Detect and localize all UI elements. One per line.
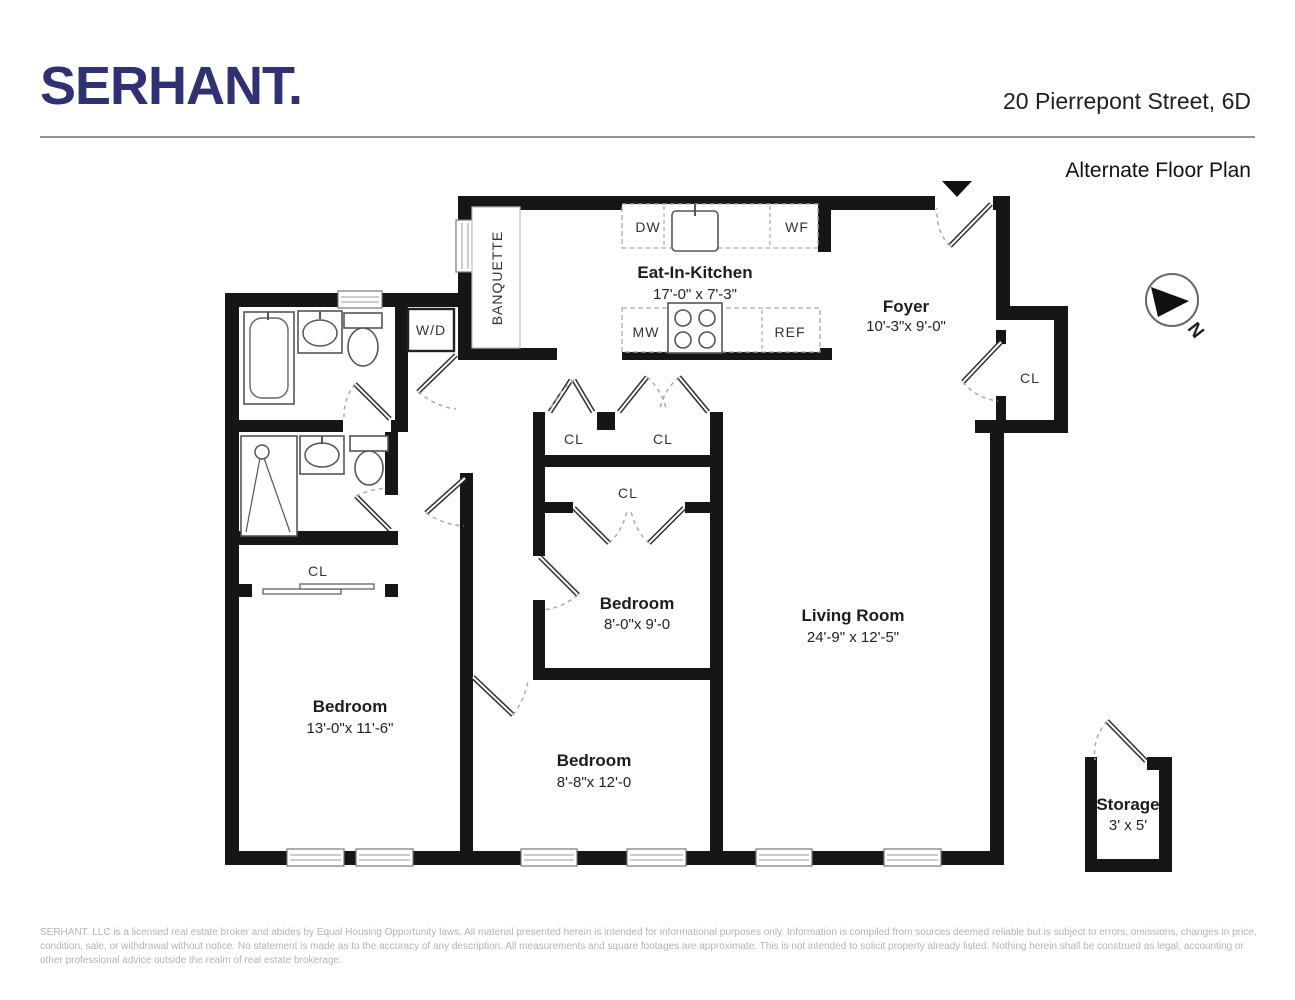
window	[287, 849, 344, 866]
left-bedroom-label: Bedroom	[313, 697, 388, 716]
window	[338, 291, 382, 308]
legal-disclaimer: SERHANT. LLC is a licensed real estate b…	[40, 926, 1258, 968]
entry-marker-icon	[942, 181, 972, 197]
bathroom-door	[356, 488, 390, 530]
kitchen-sink-icon	[672, 204, 718, 251]
sliding-closet-doors	[263, 584, 374, 594]
middle-bedroom-dims: 8'-0"x 9'-0	[604, 616, 670, 633]
sink-icon	[298, 311, 342, 353]
window	[456, 220, 474, 272]
window	[627, 849, 686, 866]
north-compass: N	[1146, 274, 1208, 342]
toilet-icon	[344, 313, 382, 366]
banquette-label: BANQUETTE	[489, 231, 505, 326]
closet-label: CL	[653, 431, 673, 447]
microwave-label: MW	[633, 324, 660, 340]
floor-plan-drawing: N Eat-In-Kitchen 17'-0" x 7'-3" Foyer 10…	[0, 0, 1295, 1000]
refrigerator-label: REF	[775, 324, 806, 340]
living-room-dims: 24'-9" x 12'-5"	[807, 629, 899, 646]
bottom-bedroom-door	[473, 677, 528, 715]
stove-icon	[668, 303, 722, 353]
kitchen-label: Eat-In-Kitchen	[637, 263, 752, 282]
closet-label: CL	[564, 431, 584, 447]
bottom-bedroom-label: Bedroom	[557, 751, 632, 770]
window	[521, 849, 577, 866]
window	[756, 849, 812, 866]
storage-dims: 3' x 5'	[1109, 817, 1147, 834]
washer-dryer-label: W/D	[416, 322, 446, 338]
living-room-label: Living Room	[802, 606, 905, 625]
left-bedroom-dims: 13'-0"x 11'-6"	[307, 720, 394, 737]
middle-bedroom-label: Bedroom	[600, 594, 675, 613]
entry-door	[937, 181, 991, 246]
storage-label: Storage	[1096, 795, 1159, 814]
window	[884, 849, 941, 866]
dishwasher-label: DW	[635, 219, 660, 235]
foyer-label: Foyer	[883, 297, 930, 316]
wine-fridge-label: WF	[785, 219, 809, 235]
left-bedroom-door	[426, 478, 465, 526]
closet-label: CL	[308, 563, 328, 579]
bottom-bedroom-dims: 8'-8"x 12'-0	[557, 774, 631, 791]
bathroom-door	[344, 384, 390, 419]
bathtub-icon	[244, 312, 294, 404]
washer-dryer-door	[418, 355, 456, 409]
hall-closet-doors	[550, 377, 708, 412]
foyer-dims: 10'-3"x 9'-0"	[866, 318, 946, 335]
foyer-closet-door	[963, 342, 1001, 401]
window	[356, 849, 413, 866]
middle-bedroom-door	[540, 557, 578, 610]
storage-door	[1095, 721, 1147, 761]
closet-label: CL	[618, 485, 638, 501]
toilet-icon	[350, 436, 388, 485]
closet-label: CL	[1020, 370, 1040, 386]
bedroom-closet-doors	[574, 508, 684, 543]
shower-icon	[241, 436, 297, 536]
sink-icon	[300, 436, 344, 474]
kitchen-dims: 17'-0" x 7'-3"	[653, 286, 737, 303]
floorplan-page: SERHANT. 20 Pierrepont Street, 6D Altern…	[0, 0, 1295, 1000]
